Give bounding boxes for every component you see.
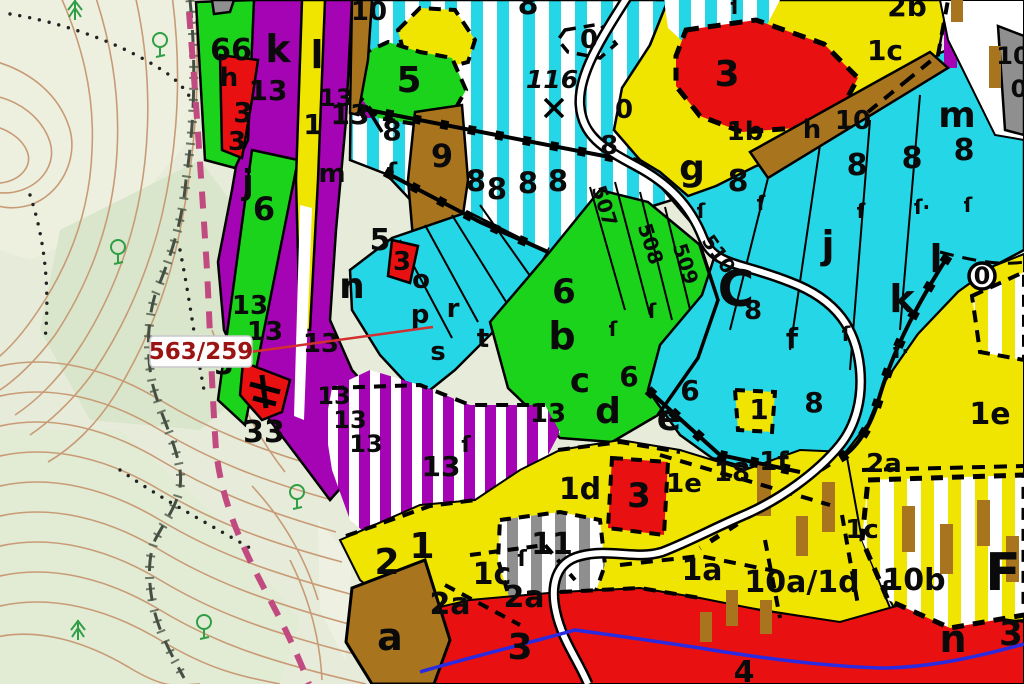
map-label: 1b	[727, 117, 764, 147]
map-label: ſ	[609, 317, 618, 341]
map-label: 8	[548, 164, 568, 198]
map-label: e	[657, 398, 681, 439]
map-label: 13	[422, 450, 461, 483]
map-label: 8	[466, 164, 486, 198]
map-label: 8	[847, 148, 868, 183]
map-label: 10	[996, 42, 1024, 70]
map-label: 2a	[503, 580, 544, 615]
map-label: 10	[351, 0, 387, 27]
map-label: 8	[744, 296, 762, 326]
map-canvas[interactable]: 66h1333kl113138mj65109ſnoprst35131313333…	[0, 0, 1024, 684]
map-label: ſ	[517, 547, 527, 572]
map-label: 2a	[429, 587, 470, 622]
map-label: ſ	[857, 199, 866, 223]
map-label: 8	[518, 166, 538, 200]
map-label: ſ	[730, 0, 740, 20]
map-label: 1d	[559, 472, 601, 507]
map-label: n	[939, 617, 966, 661]
map-label: 13	[349, 430, 382, 458]
map-label: 9	[431, 137, 453, 175]
map-label: 3	[714, 54, 739, 95]
map-label: 1	[303, 108, 322, 141]
map-label: 8	[804, 386, 823, 419]
map-label: 8	[487, 172, 507, 206]
map-label: 13	[249, 74, 288, 107]
map-label: 116	[526, 65, 578, 94]
map-label: j	[240, 163, 254, 203]
map-label: ſ·	[914, 195, 930, 219]
map-label: 8	[902, 141, 923, 176]
map-label: k	[889, 277, 915, 321]
map-label: 6	[552, 272, 576, 312]
map-label: h	[220, 63, 239, 93]
map-label: j	[819, 223, 834, 267]
map-label: 11	[531, 527, 573, 562]
map-label: 3	[393, 247, 411, 277]
map-label: d	[595, 391, 621, 432]
map-label: n	[339, 266, 365, 307]
map-label: 0	[615, 95, 633, 125]
map-label: 10a/1d	[744, 565, 859, 600]
map-label: 3	[228, 127, 246, 157]
map-label: k	[265, 27, 291, 71]
map-label: f	[786, 322, 799, 355]
map-label: 1f	[759, 447, 789, 477]
map-label: 33	[243, 415, 285, 450]
map-label: r	[447, 294, 460, 324]
map-label: 6	[680, 374, 699, 407]
map-label: 8	[954, 133, 975, 168]
map-label: 1c	[867, 34, 903, 67]
map-label: ſ	[964, 193, 973, 217]
map-label: m	[938, 95, 976, 136]
map-label: 1e	[666, 469, 702, 499]
map-label: 18	[714, 458, 750, 488]
map-label: l	[310, 33, 323, 77]
map-label: 8	[518, 0, 539, 22]
map-label: 13	[331, 98, 370, 131]
map-label: b	[548, 314, 575, 358]
map-label: a	[377, 615, 403, 659]
callout-parcel-number: 563/259	[149, 339, 253, 365]
map-label: p	[411, 300, 430, 330]
parcel-gray-sliver[interactable]	[212, 0, 234, 14]
map-label: o	[412, 265, 430, 295]
map-label: 0	[1011, 75, 1024, 103]
map-label: 1	[749, 393, 768, 426]
map-label: h	[803, 115, 822, 145]
map-label: 1a	[681, 553, 722, 588]
map-label: 6	[619, 360, 638, 393]
map-label: 6	[253, 190, 275, 228]
map-label: 8	[382, 114, 401, 147]
map-label: 8	[728, 164, 749, 199]
forest-map-svg: 66h1333kl113138mj65109ſnoprst35131313333…	[0, 0, 1024, 684]
map-label: ſ	[881, 578, 891, 603]
map-label: ſ·	[893, 339, 909, 363]
map-label: 1	[409, 526, 434, 567]
map-label: 1c	[845, 515, 879, 545]
map-label: ſ	[648, 299, 657, 323]
map-label: 10	[835, 106, 871, 136]
map-label: ſ	[697, 199, 706, 223]
map-label: 1e	[969, 397, 1010, 432]
map-label: ſ	[757, 191, 766, 215]
map-label: 10b	[882, 563, 945, 598]
map-label: 3	[999, 614, 1023, 654]
map-label: ſ	[387, 158, 398, 186]
map-label: 13	[530, 399, 566, 429]
map-label: s	[430, 337, 445, 367]
map-label: ſ	[461, 433, 471, 458]
map-label: l	[929, 237, 942, 281]
map-label: 5	[396, 60, 421, 101]
map-label: 2b	[887, 0, 927, 23]
map-label: 8	[600, 131, 618, 161]
map-label: 3	[233, 96, 252, 129]
map-label: 2a	[866, 449, 902, 479]
map-label: 3	[507, 627, 532, 668]
map-label: m	[318, 159, 345, 189]
map-label: 5	[370, 223, 391, 258]
map-label: 3	[627, 476, 651, 516]
map-label: 4	[734, 655, 755, 684]
map-label: t	[477, 324, 489, 354]
map-label: c	[570, 361, 590, 401]
map-label: 0	[580, 25, 598, 55]
map-label: F	[985, 543, 1021, 603]
map-label: ſ	[842, 322, 851, 346]
map-label: 2	[374, 542, 399, 583]
map-label: 0	[974, 262, 991, 290]
map-label: g	[679, 148, 705, 189]
